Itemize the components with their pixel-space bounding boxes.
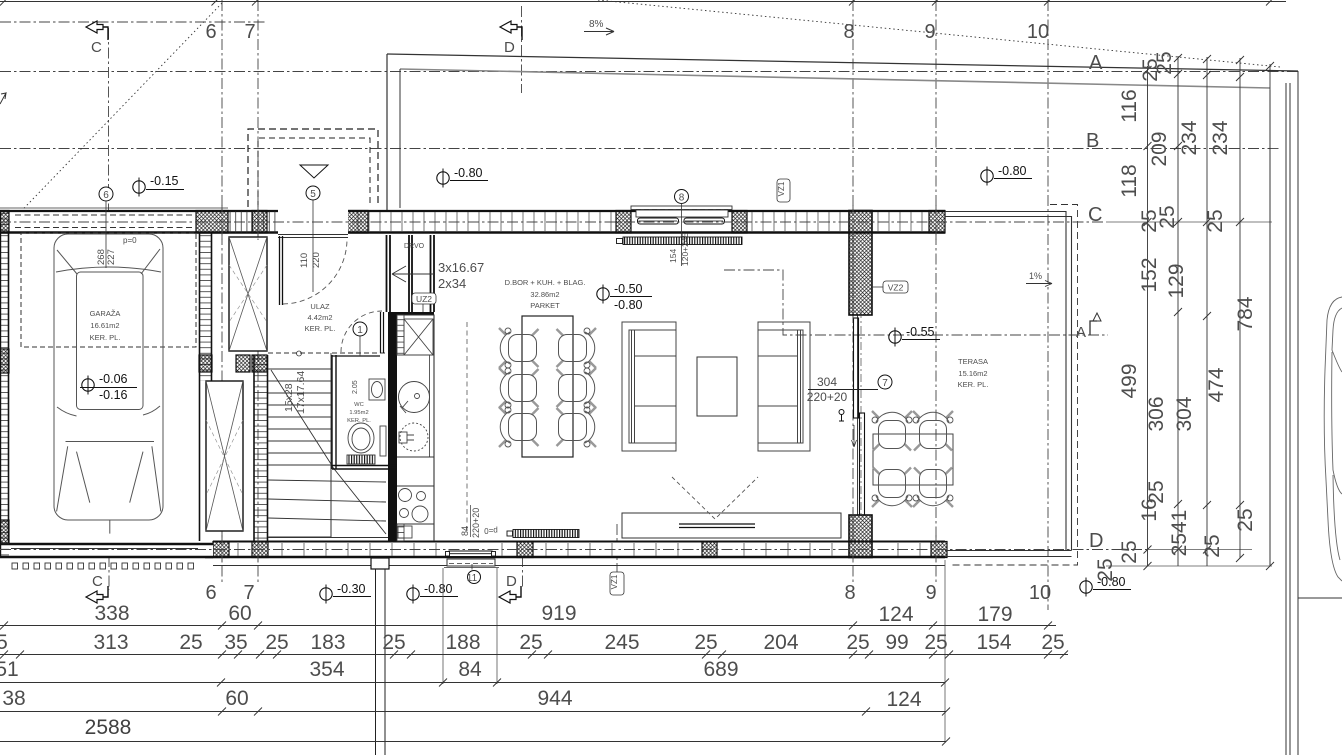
svg-text:84: 84 — [458, 658, 482, 681]
svg-text:84: 84 — [460, 526, 470, 536]
svg-text:25: 25 — [179, 631, 202, 654]
svg-text:25: 25 — [382, 631, 405, 654]
svg-text:8: 8 — [843, 21, 854, 43]
svg-text:25: 25 — [1153, 51, 1176, 74]
svg-text:474: 474 — [1205, 367, 1228, 402]
svg-text:-0.50: -0.50 — [614, 282, 643, 296]
svg-text:ULAZ: ULAZ — [310, 302, 330, 311]
svg-text:220+20: 220+20 — [471, 508, 481, 538]
svg-text:227: 227 — [106, 249, 117, 265]
svg-text:8: 8 — [679, 193, 685, 204]
svg-text:A: A — [1089, 52, 1103, 74]
svg-text:120+245: 120+245 — [680, 232, 690, 266]
svg-text:7: 7 — [882, 378, 888, 389]
svg-text:KER. PL.: KER. PL. — [90, 333, 121, 342]
svg-text:16.61m2: 16.61m2 — [90, 321, 119, 330]
svg-text:32.86m2: 32.86m2 — [530, 290, 559, 299]
svg-text:1.95m2: 1.95m2 — [349, 410, 368, 416]
svg-text:306: 306 — [1145, 396, 1168, 431]
svg-text:25: 25 — [1204, 209, 1227, 232]
svg-text:99: 99 — [885, 631, 908, 654]
svg-text:C: C — [91, 39, 102, 56]
svg-text:4.42m2: 4.42m2 — [307, 313, 332, 322]
svg-text:944: 944 — [537, 687, 572, 710]
svg-text:6: 6 — [205, 582, 216, 604]
svg-text:5: 5 — [0, 631, 8, 654]
svg-text:25: 25 — [1234, 508, 1257, 531]
svg-text:118: 118 — [1118, 164, 1141, 197]
svg-text:183: 183 — [310, 631, 345, 654]
svg-text:110: 110 — [299, 253, 310, 268]
svg-text:25: 25 — [924, 631, 947, 654]
svg-text:304: 304 — [1173, 396, 1196, 431]
svg-text:-0.80: -0.80 — [614, 298, 643, 312]
svg-text:15x28: 15x28 — [283, 383, 295, 412]
svg-text:354: 354 — [309, 658, 344, 681]
svg-text:WC: WC — [354, 402, 364, 408]
svg-text:16: 16 — [1138, 498, 1161, 521]
svg-text:DRVO: DRVO — [404, 243, 425, 250]
svg-text:KER. PL.: KER. PL. — [305, 324, 336, 333]
svg-text:-0.55: -0.55 — [906, 325, 935, 339]
svg-text:124: 124 — [886, 688, 921, 711]
svg-text:245: 245 — [604, 631, 639, 654]
svg-text:15.16m2: 15.16m2 — [958, 369, 987, 378]
svg-text:PARKET: PARKET — [530, 301, 560, 310]
svg-text:VZ1: VZ1 — [777, 181, 786, 196]
svg-text:17x17.64: 17x17.64 — [295, 371, 307, 414]
svg-text:7: 7 — [244, 21, 255, 43]
svg-text:6: 6 — [103, 190, 109, 201]
svg-text:220: 220 — [311, 252, 322, 268]
svg-text:3x16.67: 3x16.67 — [438, 260, 484, 275]
svg-text:9: 9 — [925, 582, 936, 604]
svg-text:p=0: p=0 — [123, 236, 137, 245]
svg-text:2541: 2541 — [1168, 510, 1191, 557]
svg-text:1: 1 — [357, 325, 363, 336]
svg-text:919: 919 — [541, 602, 576, 625]
svg-text:51: 51 — [0, 658, 19, 681]
svg-text:129: 129 — [1165, 263, 1188, 298]
svg-text:5: 5 — [310, 189, 316, 200]
svg-text:VZ1: VZ1 — [610, 574, 619, 589]
svg-text:2x34: 2x34 — [438, 276, 466, 291]
svg-text:209: 209 — [1148, 131, 1171, 166]
svg-text:25: 25 — [1201, 534, 1224, 557]
svg-text:25: 25 — [1156, 205, 1179, 228]
svg-text:-0.15: -0.15 — [150, 174, 179, 188]
svg-text:179: 179 — [977, 603, 1012, 626]
svg-text:313: 313 — [93, 631, 128, 654]
svg-text:784: 784 — [1234, 296, 1257, 331]
svg-text:VZ2: VZ2 — [888, 283, 904, 293]
svg-text:D.BOR + KUH. + BLAG.: D.BOR + KUH. + BLAG. — [505, 278, 586, 287]
svg-text:2.05: 2.05 — [352, 380, 359, 394]
svg-text:D: D — [506, 573, 517, 590]
svg-text:124: 124 — [878, 603, 913, 626]
svg-text:220+20: 220+20 — [807, 390, 848, 404]
svg-text:7: 7 — [243, 582, 254, 604]
svg-text:154: 154 — [668, 249, 678, 263]
svg-text:1%: 1% — [1029, 271, 1042, 281]
svg-text:-0.06: -0.06 — [99, 372, 128, 386]
svg-text:6: 6 — [205, 21, 216, 43]
svg-text:11: 11 — [467, 573, 478, 584]
svg-text:UZ2: UZ2 — [416, 294, 432, 304]
svg-text:-0.80: -0.80 — [998, 164, 1027, 178]
svg-text:8%: 8% — [589, 19, 604, 30]
svg-text:25: 25 — [265, 631, 288, 654]
svg-text:25: 25 — [519, 631, 542, 654]
svg-text:304: 304 — [817, 375, 837, 389]
svg-text:p=0: p=0 — [484, 526, 498, 535]
svg-text:8: 8 — [844, 582, 855, 604]
svg-text:C: C — [1088, 204, 1102, 226]
svg-text:-0.30: -0.30 — [337, 582, 366, 596]
svg-text:9: 9 — [924, 21, 935, 43]
svg-text:234: 234 — [1178, 120, 1201, 155]
svg-text:D: D — [504, 39, 515, 56]
svg-text:116: 116 — [1118, 89, 1141, 122]
svg-text:KER. PL.: KER. PL. — [958, 380, 989, 389]
svg-text:25: 25 — [1118, 540, 1141, 563]
svg-text:60: 60 — [225, 687, 248, 710]
svg-text:C: C — [92, 573, 103, 590]
svg-text:154: 154 — [976, 631, 1011, 654]
svg-text:10: 10 — [1029, 582, 1051, 604]
svg-text:35: 35 — [224, 631, 247, 654]
svg-text:B: B — [1086, 130, 1099, 152]
svg-text:25: 25 — [846, 631, 869, 654]
svg-text:204: 204 — [763, 631, 798, 654]
svg-text:A: A — [1076, 324, 1086, 341]
svg-text:-0.80: -0.80 — [424, 582, 453, 596]
svg-text:GARAŽA: GARAŽA — [90, 309, 121, 318]
svg-text:D: D — [1089, 530, 1103, 552]
svg-text:60: 60 — [228, 602, 251, 625]
svg-text:25: 25 — [1094, 558, 1117, 581]
svg-text:-0.80: -0.80 — [454, 166, 483, 180]
svg-text:234: 234 — [1209, 120, 1232, 155]
svg-text:2588: 2588 — [85, 716, 132, 739]
svg-text:188: 188 — [445, 631, 480, 654]
svg-text:10: 10 — [1027, 21, 1049, 43]
svg-text:689: 689 — [703, 658, 738, 681]
svg-text:38: 38 — [2, 687, 25, 710]
svg-text:25: 25 — [1041, 631, 1064, 654]
svg-text:TERASA: TERASA — [958, 357, 988, 366]
svg-text:152: 152 — [1138, 257, 1161, 292]
svg-text:499: 499 — [1118, 363, 1141, 398]
svg-text:338: 338 — [94, 602, 129, 625]
svg-text:-0.16: -0.16 — [99, 388, 128, 402]
svg-text:25: 25 — [694, 631, 717, 654]
